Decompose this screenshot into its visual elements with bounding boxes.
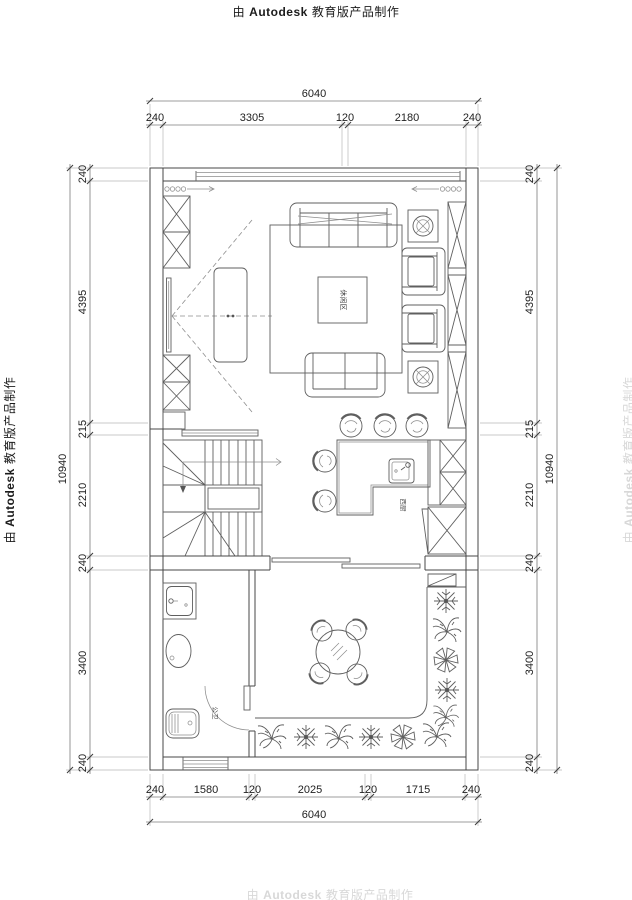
stair-rail — [150, 429, 258, 436]
dim-bottom-seg6: 240 — [462, 784, 480, 796]
bathroom-window — [183, 757, 228, 770]
dim-right-seg3: 2210 — [524, 483, 536, 507]
dimensions-left: 10940 240 4395 215 2210 240 3400 240 — [57, 164, 148, 774]
dim-bottom-seg2: 120 — [243, 784, 261, 796]
top-window — [196, 171, 460, 181]
floorplan-canvas: 6040 240 3305 120 2180 240 — [0, 0, 632, 900]
room-label-west-kitchen: 西厨 — [399, 499, 407, 513]
dim-left-seg5: 3400 — [77, 651, 89, 675]
dim-right-seg0: 240 — [524, 165, 536, 183]
dim-top-seg1: 3305 — [240, 112, 264, 124]
plants — [258, 589, 461, 750]
outer-walls — [150, 168, 478, 770]
tv — [167, 278, 172, 352]
dim-bottom-seg1: 1580 — [194, 784, 218, 796]
armchair-2 — [402, 305, 445, 352]
dim-top-seg4: 240 — [463, 112, 481, 124]
kitchen-counter — [337, 440, 430, 515]
side-table-top — [408, 210, 438, 242]
dim-left-seg4: 240 — [77, 554, 89, 572]
appliance-box — [422, 507, 466, 554]
dim-left-seg0: 240 — [77, 165, 89, 183]
dim-bottom-seg3: 2025 — [298, 784, 322, 796]
sliding-door — [272, 558, 420, 568]
tall-cabinet — [428, 440, 466, 505]
side-table-bottom — [408, 361, 438, 393]
dining-table-set — [306, 616, 371, 688]
tv-sightlines — [172, 220, 272, 412]
floorplan-page: 由Autodesk教育版产品制作 由Autodesk教育版产品制作 由Autod… — [0, 0, 632, 900]
curtains — [165, 187, 461, 192]
dimensions-right: 240 4395 215 2210 240 3400 240 10940 — [480, 164, 562, 774]
dim-right-seg5: 3400 — [524, 651, 536, 675]
tv-console — [214, 268, 247, 362]
dim-bottom-seg5: 1715 — [406, 784, 430, 796]
dim-bottom-seg0: 240 — [146, 784, 164, 796]
entry-step — [428, 574, 456, 586]
dimensions-bottom: 240 1580 120 2025 120 1715 240 6040 — [146, 774, 482, 826]
right-wall-cabinets — [448, 202, 466, 428]
dim-left-overall: 10940 — [57, 454, 69, 485]
dim-left-seg2: 215 — [77, 420, 89, 438]
bathtub — [166, 709, 199, 738]
dim-top-seg2: 120 — [336, 112, 354, 124]
stairs — [163, 440, 262, 556]
dim-right-seg1: 4395 — [524, 290, 536, 314]
dim-right-seg4: 240 — [524, 554, 536, 572]
bathroom-partition — [249, 570, 255, 757]
left-wall-cabinets — [163, 196, 190, 429]
dim-top-overall: 6040 — [302, 88, 326, 100]
planter-bed — [255, 587, 466, 718]
dim-right-seg2: 215 — [524, 420, 536, 438]
armchair-1 — [402, 248, 445, 295]
dim-right-overall: 10940 — [544, 454, 556, 485]
vanity-sink — [163, 583, 196, 619]
toilet — [166, 635, 191, 668]
dim-right-seg6: 240 — [524, 754, 536, 772]
dim-left-seg1: 4395 — [77, 290, 89, 314]
dim-bottom-overall: 6040 — [302, 809, 326, 821]
room-label-lounge: 休闲区 — [339, 290, 348, 311]
sofa-2seat — [305, 353, 385, 397]
dim-left-seg3: 2210 — [77, 483, 89, 507]
dim-left-seg6: 240 — [77, 754, 89, 772]
kitchen-sink — [389, 459, 414, 483]
dim-top-seg0: 240 — [146, 112, 164, 124]
dim-bottom-seg4: 120 — [359, 784, 377, 796]
room-label-bathroom: 公卫 — [211, 707, 219, 721]
dimensions-top: 6040 240 3305 120 2180 240 — [146, 88, 482, 166]
dim-top-seg3: 2180 — [395, 112, 419, 124]
